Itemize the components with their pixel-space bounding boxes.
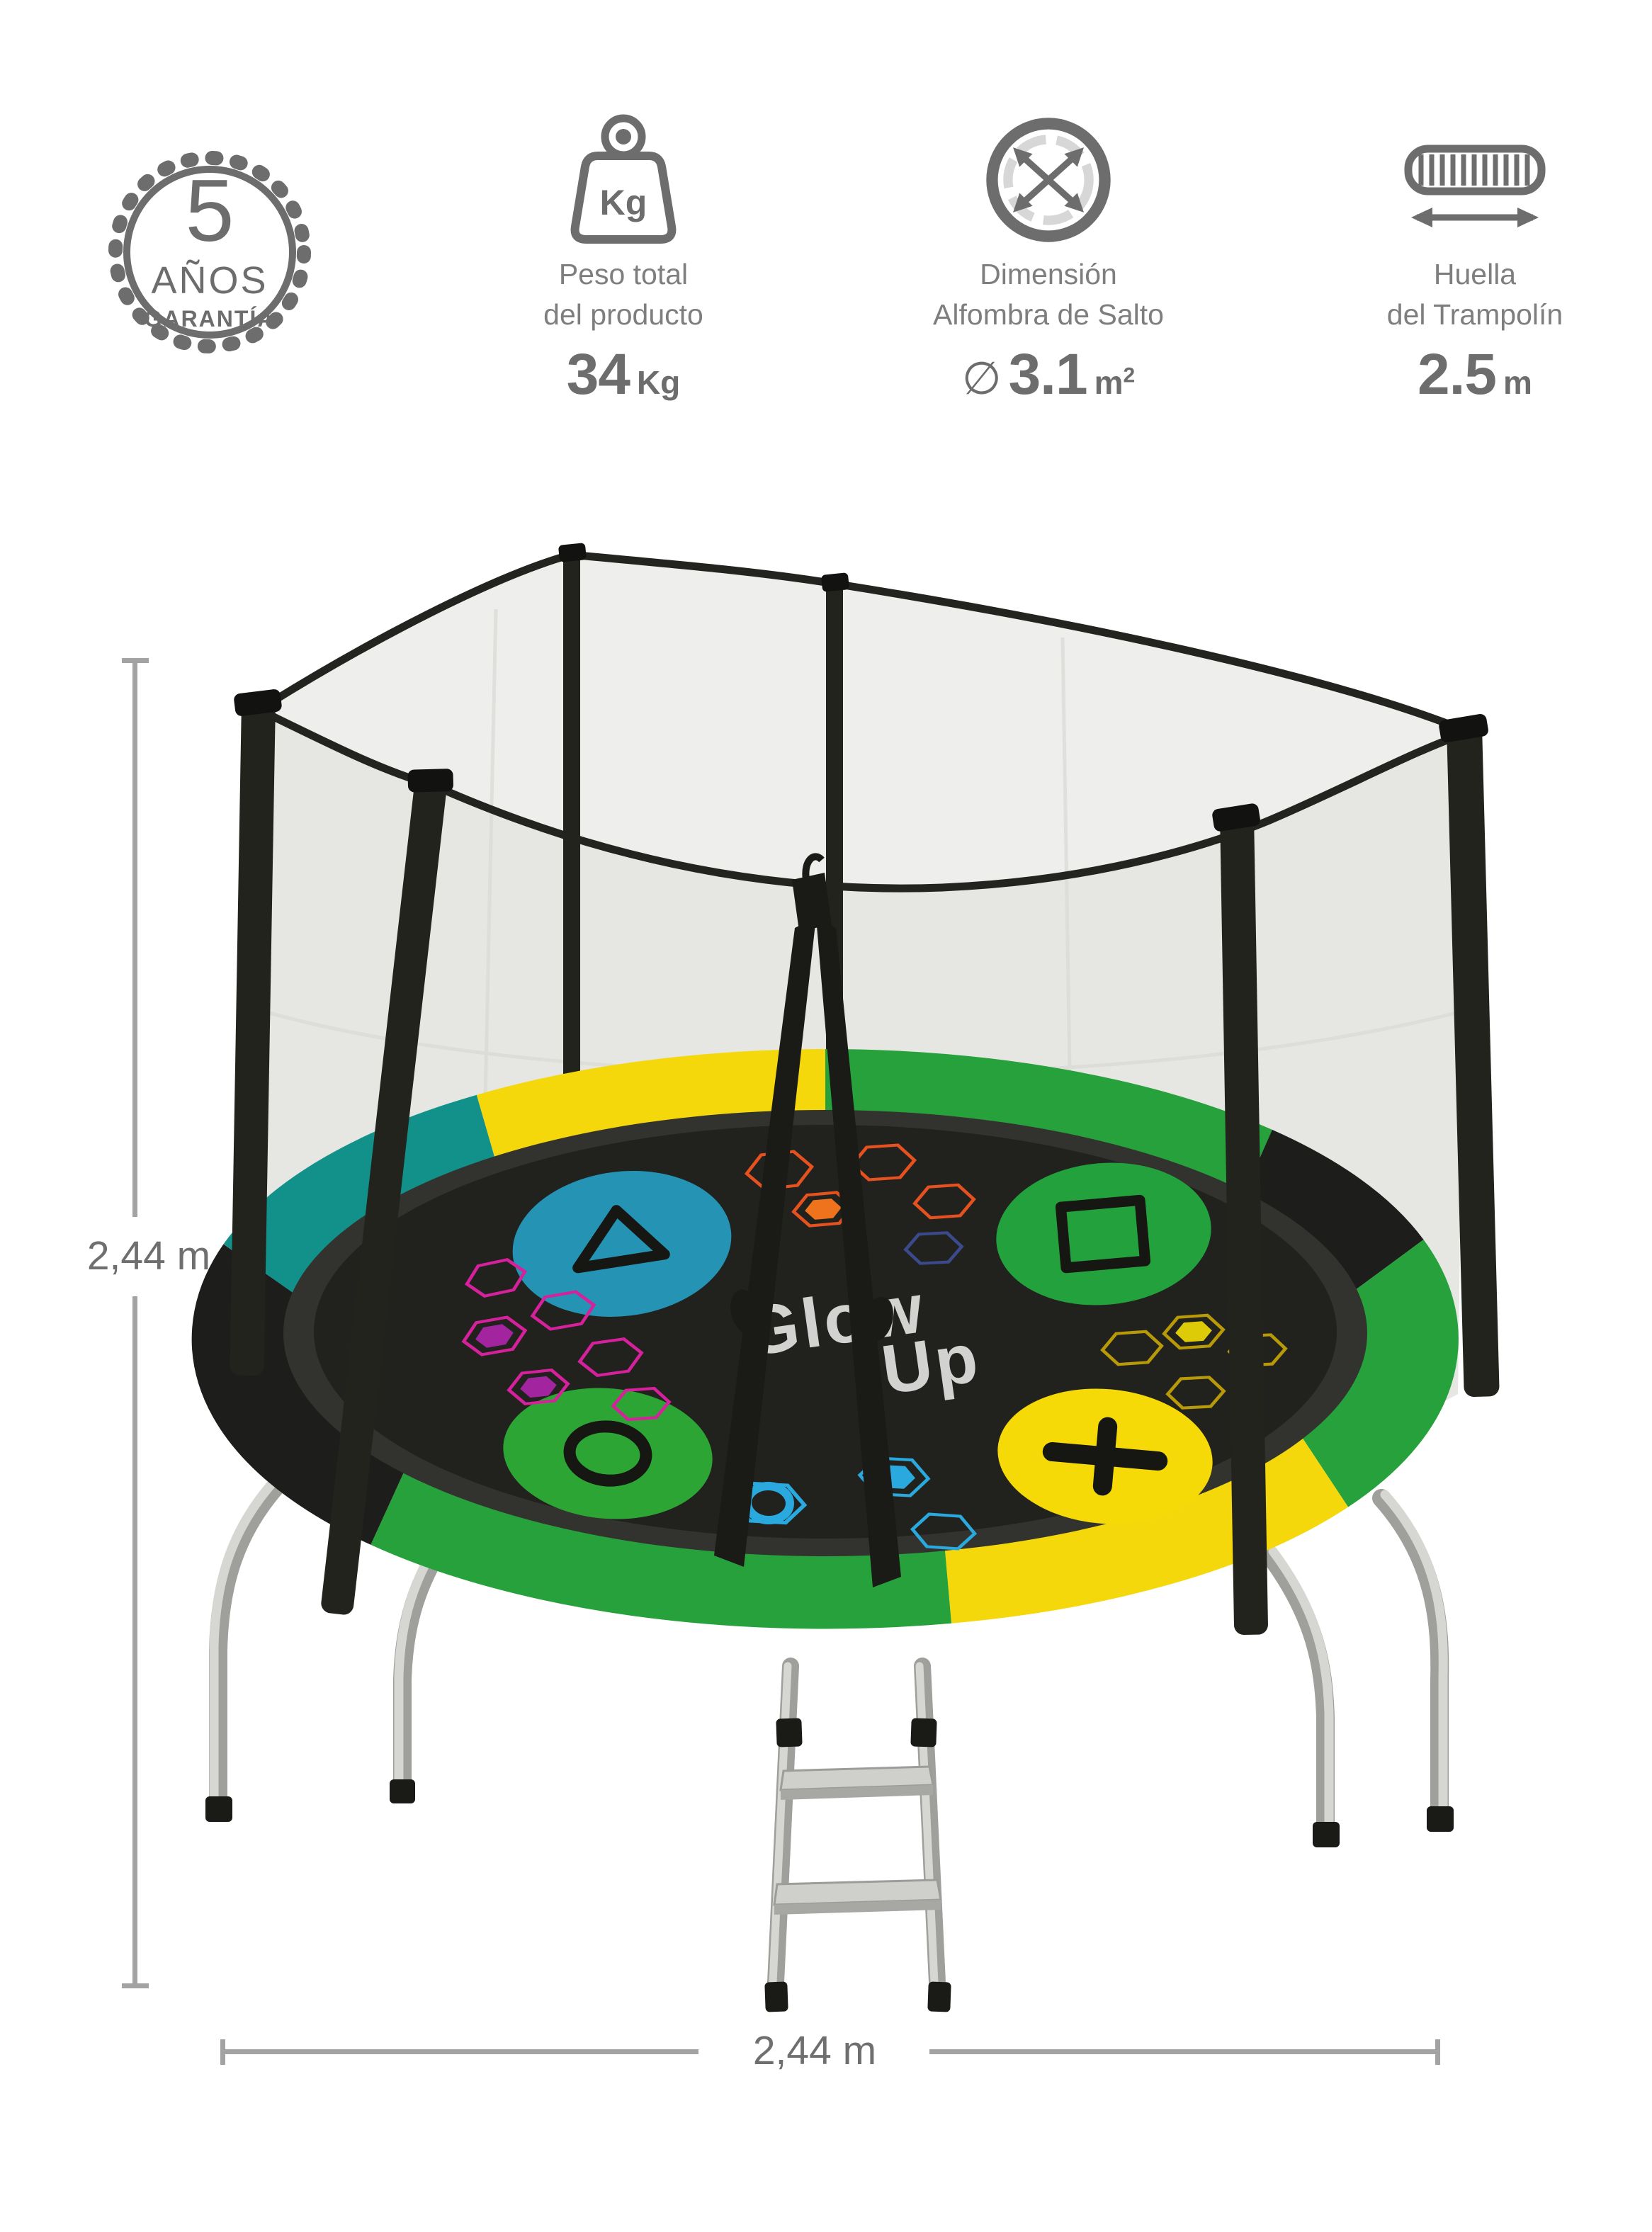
trampoline-illustration: Glow Up [0,0,1652,2232]
ladder-clamps [776,1718,937,1747]
brand-logo-word2: Up [877,1318,985,1409]
ladder [764,1666,951,2012]
ladder-feet [764,1981,951,2012]
